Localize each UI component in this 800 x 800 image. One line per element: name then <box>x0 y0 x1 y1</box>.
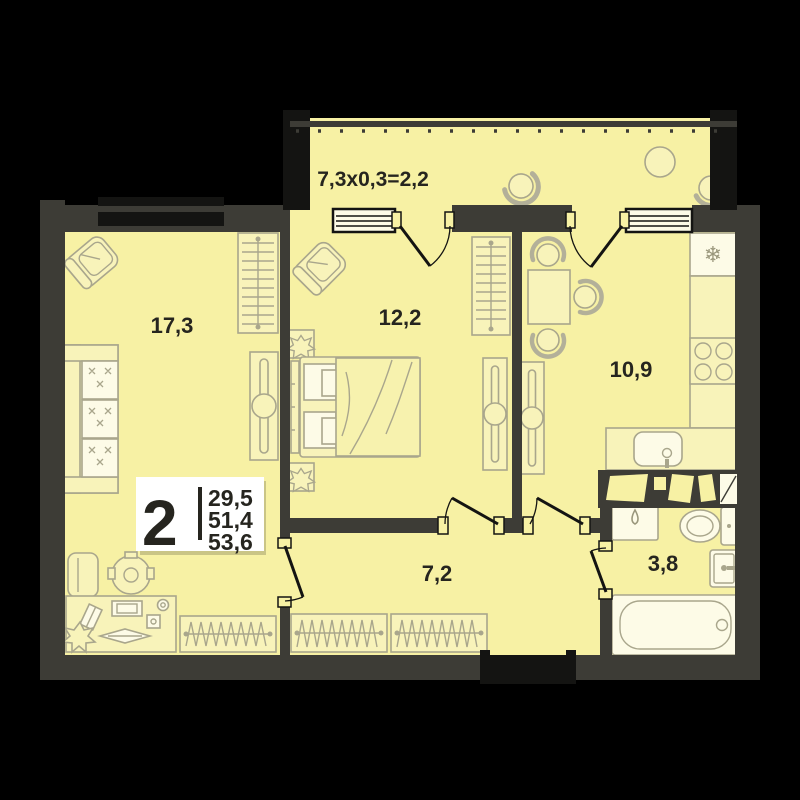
kitchen-window <box>626 209 692 232</box>
badge-divider <box>198 487 202 540</box>
built-in-closet <box>180 616 276 652</box>
refrigerator: ❄ <box>690 233 736 276</box>
wardrobe <box>250 352 278 460</box>
wardrobe-shelves <box>238 233 278 333</box>
dining-table <box>528 270 570 324</box>
wall-bedroom-kitchen <box>512 232 522 518</box>
floor-plan: ❄ <box>0 0 800 800</box>
laptop <box>112 601 142 616</box>
room-label-kitchen: 10,9 <box>610 357 653 382</box>
stove <box>690 338 736 384</box>
room-label-hallway: 7,2 <box>422 561 453 586</box>
badge-area-total: 53,6 <box>208 529 253 555</box>
wall-living-hall <box>280 600 290 655</box>
nightstand <box>287 463 314 491</box>
apartment-badge: 2 29,5 51,4 53,6 <box>136 477 266 559</box>
wardrobe <box>483 358 507 470</box>
bedroom-window <box>333 209 395 232</box>
wall-hall-top <box>283 518 443 533</box>
badge-rooms-count: 2 <box>142 487 178 559</box>
sofa <box>64 345 118 493</box>
nightstand <box>287 330 314 358</box>
double-bed <box>291 357 420 457</box>
sink-counter <box>606 428 738 470</box>
sink <box>634 432 682 466</box>
balcony-label: 7,3x0,3=2,2 <box>317 168 429 191</box>
desk-chair <box>68 553 98 597</box>
floor-plan-canvas: ❄ <box>0 0 800 800</box>
room-label-living: 17,3 <box>151 313 194 338</box>
entrance-door <box>486 655 570 684</box>
living-room-window <box>98 212 224 226</box>
toilet <box>680 507 738 545</box>
wall-left <box>40 200 65 680</box>
built-in-closet <box>391 614 487 652</box>
room-label-bedroom: 12,2 <box>379 305 422 330</box>
wall-bottom <box>40 655 760 680</box>
snowflake-icon: ❄ <box>704 242 722 267</box>
wall-right <box>735 205 760 680</box>
wardrobe <box>520 362 544 474</box>
wardrobe-shelves <box>472 237 510 335</box>
pad <box>147 615 160 628</box>
bathtub <box>612 595 739 655</box>
bathroom-sink <box>710 550 738 587</box>
living-window-sill <box>98 197 224 206</box>
room-label-bathroom: 3,8 <box>648 551 679 576</box>
faucet-icon <box>665 459 669 468</box>
cup <box>158 600 169 611</box>
wall-living-hall <box>280 232 290 543</box>
wall-bathroom-west <box>600 592 612 655</box>
wall-pier-balcony <box>452 205 572 232</box>
built-in-closet <box>291 614 387 652</box>
balcony-table <box>645 147 675 177</box>
